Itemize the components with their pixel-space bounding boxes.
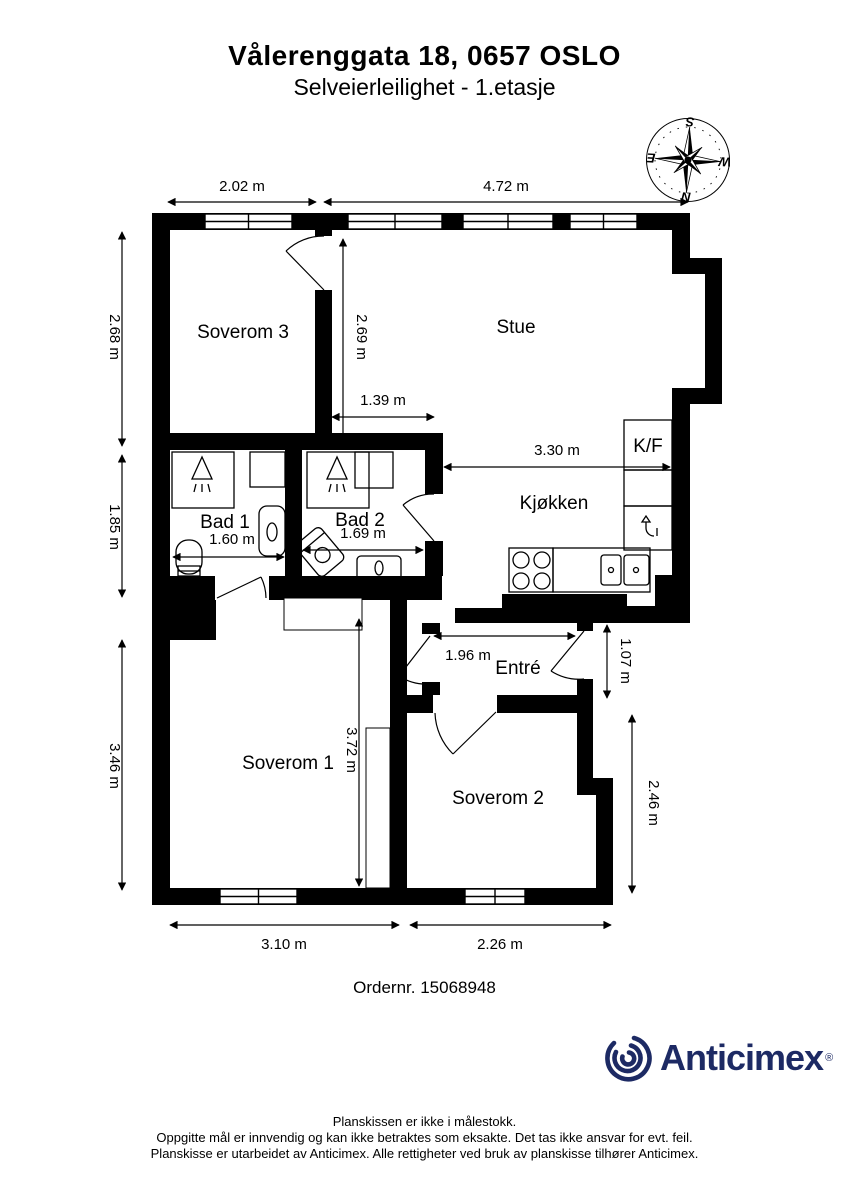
dim-soverom1-width: 3.10 m <box>261 936 307 953</box>
footer-line-2: Oppgitte mål er innvendig og kan ikke be… <box>0 1130 849 1146</box>
room-label-bad2: Bad 2 <box>335 510 385 531</box>
dim-soverom1-left-depth: 3.46 m <box>106 743 123 789</box>
compass-rose: N E S W <box>644 112 733 206</box>
room-label-bad1: Bad 1 <box>200 512 250 533</box>
dim-kitchen-width: 3.30 m <box>534 442 580 459</box>
windows <box>205 214 637 904</box>
room-label-entre: Entré <box>495 658 540 679</box>
kitchen-cabinet <box>624 470 672 506</box>
wardrobes <box>284 598 390 888</box>
footer-line-3: Planskisse er utarbeidet av Anticimex. A… <box>0 1146 849 1162</box>
compass-south: S <box>685 114 695 129</box>
compass-north: N <box>680 189 691 205</box>
room-label-stue: Stue <box>496 317 535 338</box>
dim-soverom3-width: 2.02 m <box>219 178 265 195</box>
dim-stue-kitchen: 1.39 m <box>360 392 406 409</box>
dim-bad1-width: 1.60 m <box>209 531 255 548</box>
dim-stue-depth: 2.69 m <box>353 314 370 360</box>
room-label-soverom3: Soverom 3 <box>197 322 289 343</box>
sink-basin-right <box>624 555 649 585</box>
room-label-kf: K/F <box>633 436 663 457</box>
dim-stue-width: 4.72 m <box>483 178 529 195</box>
dim-soverom2-depth: 2.46 m <box>645 780 662 826</box>
anticimex-logo-text: Anticimex <box>660 1037 823 1079</box>
dim-bad-depth: 1.85 m <box>106 504 123 550</box>
compass-west: W <box>717 154 732 170</box>
cabinet-bad1 <box>250 452 285 487</box>
sink-tap-icon <box>642 516 657 536</box>
walls <box>152 213 722 905</box>
floorplan-drawing: 2.02 m 4.72 m 2.68 m 1.85 m 3.46 m 2.69 … <box>0 0 849 1200</box>
registered-mark: ® <box>825 1052 833 1064</box>
cabinet-bad2 <box>355 452 393 488</box>
sink-bad1 <box>259 506 285 556</box>
anticimex-swirl-icon <box>603 1033 653 1083</box>
kitchen-sink-cabinet <box>624 506 672 550</box>
sink-basin-left <box>601 555 621 585</box>
wardrobe-soverom1 <box>366 728 390 888</box>
shower-icon <box>327 457 347 492</box>
room-label-soverom2: Soverom 2 <box>452 788 544 809</box>
anticimex-logo: Anticimex® <box>603 1032 848 1084</box>
dim-soverom1-depth: 3.72 m <box>343 727 360 773</box>
shower-icon <box>192 457 212 492</box>
order-number: Ordernr. 15068948 <box>0 978 849 998</box>
dim-soverom2-width: 2.26 m <box>477 936 523 953</box>
footer-line-1: Planskissen er ikke i målestokk. <box>0 1114 849 1130</box>
dim-soverom3-depth: 2.68 m <box>106 314 123 360</box>
compass-star <box>653 125 722 194</box>
dim-entre-width: 1.96 m <box>445 647 491 664</box>
footer-disclaimer: Planskissen er ikke i målestokk. Oppgitt… <box>0 1114 849 1162</box>
floorplan-page: Vålerenggata 18, 0657 OSLO Selveierleili… <box>0 0 849 1200</box>
wardrobe-hall <box>284 598 362 630</box>
room-label-soverom1: Soverom 1 <box>242 753 334 774</box>
compass-east: E <box>646 150 656 165</box>
dim-entre-depth: 1.07 m <box>617 638 634 684</box>
room-label-kjokken: Kjøkken <box>520 493 589 514</box>
